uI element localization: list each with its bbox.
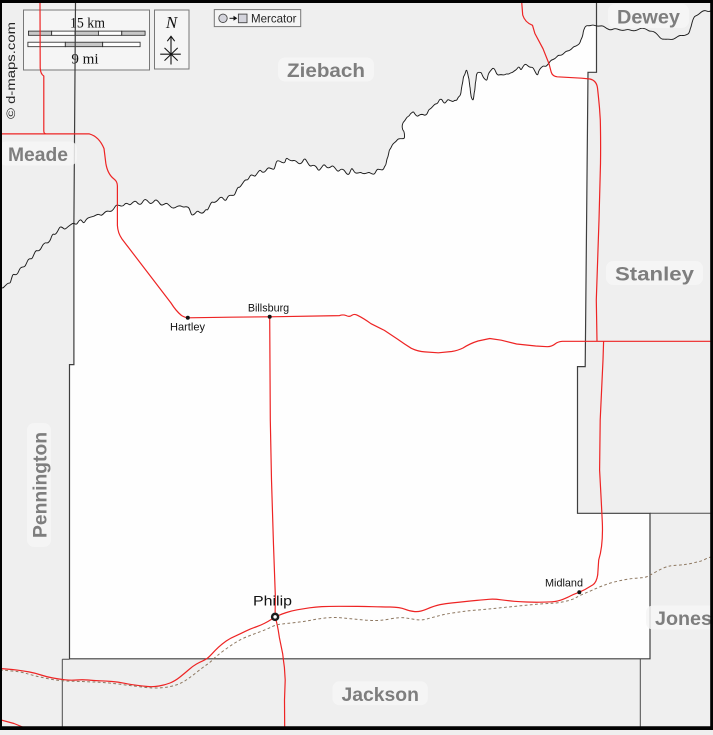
svg-text:Mercator: Mercator (251, 12, 297, 26)
svg-text:Jackson: Jackson (341, 684, 419, 706)
svg-text:Dewey: Dewey (617, 7, 680, 29)
svg-text:Midland: Midland (545, 578, 583, 590)
svg-text:Stanley: Stanley (615, 264, 694, 286)
svg-text:N: N (165, 13, 179, 32)
svg-text:Hartley: Hartley (170, 322, 206, 334)
svg-text:Pennington: Pennington (30, 432, 52, 538)
svg-text:© d-maps.com: © d-maps.com (6, 22, 18, 119)
svg-text:Ziebach: Ziebach (287, 60, 365, 82)
svg-text:Meade: Meade (8, 144, 68, 166)
svg-text:Billsburg: Billsburg (248, 302, 289, 314)
svg-text:Philip: Philip (253, 593, 292, 609)
svg-text:Jones: Jones (655, 608, 712, 630)
